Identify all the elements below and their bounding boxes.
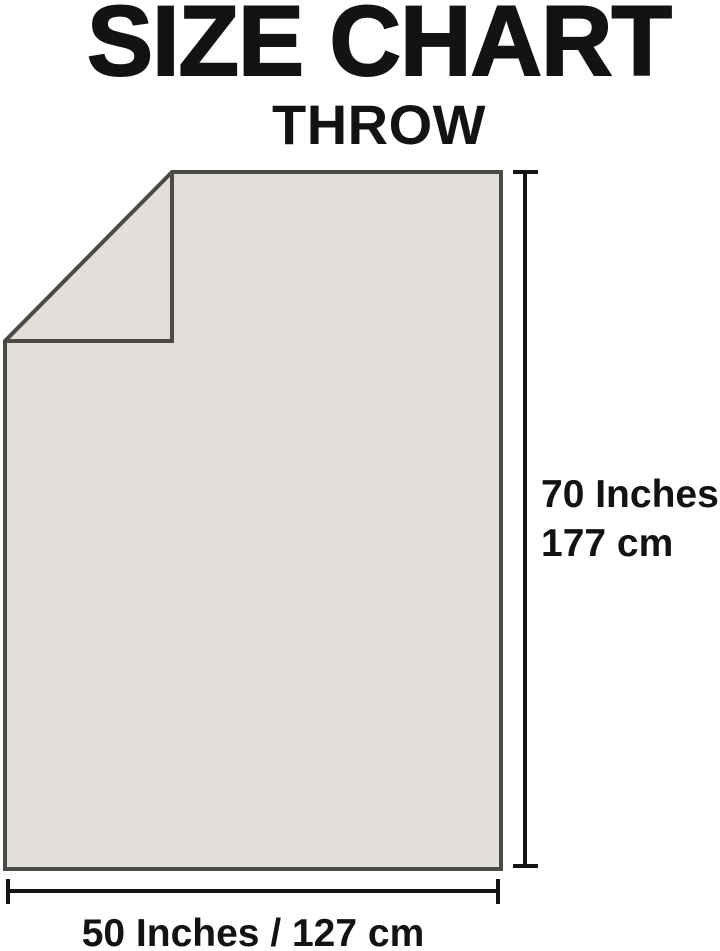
width-dimension-label: 50 Inches / 127 cm bbox=[0, 909, 506, 951]
width-value: 50 Inches / 127 cm bbox=[82, 912, 425, 951]
height-dimension-label: 70 Inches 177 cm bbox=[541, 470, 719, 568]
height-inches-value: 70 Inches bbox=[541, 470, 719, 519]
height-centimeters-value: 177 cm bbox=[541, 519, 719, 568]
blanket-shape bbox=[5, 172, 501, 869]
height-dimension-line bbox=[513, 172, 538, 866]
size-chart-page: SIZE CHART THROW 70 Inches 177 cm 50 Inc… bbox=[0, 0, 720, 951]
width-dimension-line bbox=[8, 879, 498, 904]
